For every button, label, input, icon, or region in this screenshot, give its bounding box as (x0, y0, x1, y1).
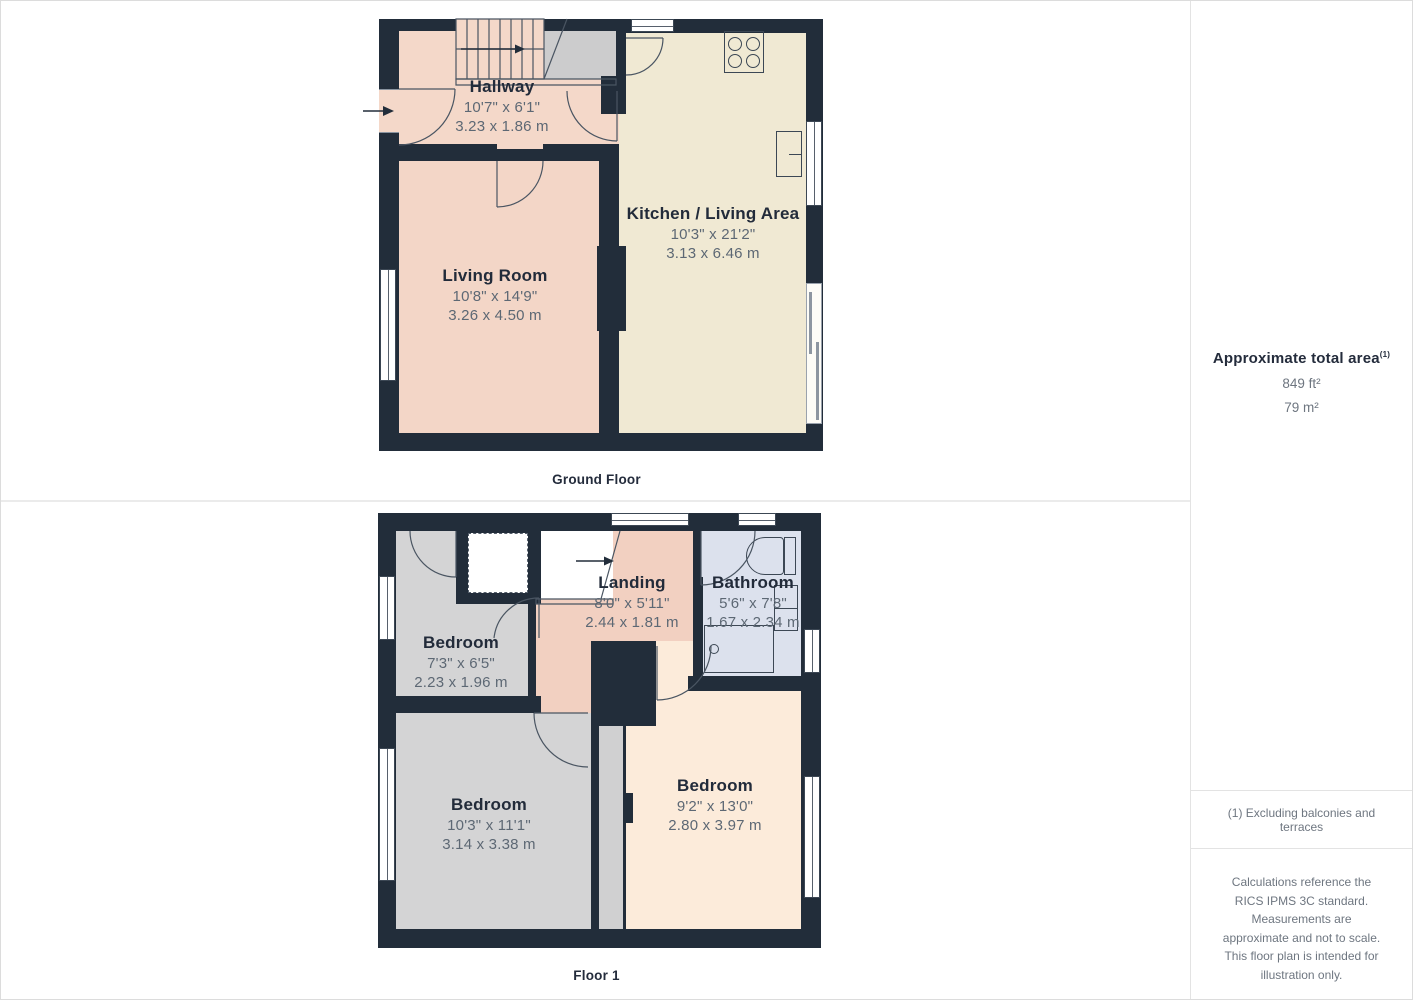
ground-floor-title: Ground Floor (1, 472, 1192, 487)
wall (688, 676, 821, 691)
living-room-window (380, 269, 396, 381)
bedroom-small-label: Bedroom 7'3" x 6'5" 2.23 x 1.96 m (414, 633, 508, 691)
room-dim-metric: 2.80 x 3.97 m (668, 817, 762, 834)
room-dim-imperial: 10'3" x 21'2" (627, 226, 800, 243)
room-dim-metric: 3.13 x 6.46 m (627, 245, 800, 262)
chimney-breast (597, 246, 626, 331)
room-dim-metric: 2.44 x 1.81 m (585, 614, 679, 631)
room-name: Living Room (442, 266, 547, 286)
total-area-ft: 849 ft² (1191, 376, 1412, 391)
ground-floor-plan: Hallway 10'7" x 6'1" 3.23 x 1.86 m Livin… (379, 19, 823, 451)
bathroom-window (804, 629, 820, 673)
area-sidebar: Approximate total area(1) 849 ft² 79 m² … (1190, 1, 1412, 1000)
corridor-strip (599, 726, 623, 929)
room-name: Bedroom (414, 633, 508, 653)
room-dim-imperial: 8'0" x 5'11" (585, 595, 679, 612)
room-name: Hallway (455, 77, 549, 97)
room-dim-metric: 3.23 x 1.86 m (455, 118, 549, 135)
room-name: Kitchen / Living Area (627, 204, 800, 224)
stair-upper-landing (544, 31, 616, 79)
toilet-tank-icon (784, 537, 796, 575)
shower-head-icon (709, 644, 719, 654)
floorplan-page: Hallway 10'7" x 6'1" 3.23 x 1.86 m Livin… (0, 0, 1413, 1000)
room-dim-metric: 3.14 x 3.38 m (442, 836, 536, 853)
center-wall-block (591, 641, 656, 726)
room-name: Bathroom (706, 573, 800, 593)
bedroom-small-window (379, 576, 395, 640)
room-dim-metric: 2.23 x 1.96 m (414, 674, 508, 691)
toilet-icon (746, 537, 784, 575)
floor1-plan: Landing 8'0" x 5'11" 2.44 x 1.81 m Bathr… (378, 513, 821, 948)
total-area-m: 79 m² (1191, 400, 1412, 415)
room-dim-imperial: 7'3" x 6'5" (414, 655, 508, 672)
room-dim-imperial: 5'6" x 7'8" (706, 595, 800, 612)
wall (693, 577, 703, 691)
closet-icon (468, 533, 528, 593)
floor1-panel: Landing 8'0" x 5'11" 2.44 x 1.81 m Bathr… (1, 502, 1192, 999)
room-dim-metric: 1.67 x 2.34 m (706, 614, 800, 631)
landing-label: Landing 8'0" x 5'11" 2.44 x 1.81 m (585, 573, 679, 631)
fridge-icon (776, 131, 802, 177)
stove-icon (724, 31, 764, 73)
bathroom-label: Bathroom 5'6" x 7'8" 1.67 x 2.34 m (706, 573, 800, 631)
footnote-section: (1) Excluding balconies and terraces (1191, 791, 1412, 849)
wall (379, 144, 497, 161)
bedroom-left-label: Bedroom 10'3" x 11'1" 3.14 x 3.38 m (442, 795, 536, 853)
total-area-footnote-marker: (1) (1380, 350, 1390, 359)
floorplan-main: Hallway 10'7" x 6'1" 3.23 x 1.86 m Livin… (1, 1, 1192, 1000)
total-area-section: Approximate total area(1) 849 ft² 79 m² (1191, 1, 1412, 791)
bedroom-left-window (379, 748, 395, 881)
total-area-title-text: Approximate total area (1213, 350, 1380, 367)
landing-top-window (611, 513, 689, 526)
kitchen-label: Kitchen / Living Area 10'3" x 21'2" 3.13… (627, 204, 800, 262)
wall (601, 76, 626, 114)
room-dim-imperial: 9'2" x 13'0" (668, 798, 762, 815)
room-dim-imperial: 10'8" x 14'9" (442, 288, 547, 305)
kitchen-top-window (631, 19, 674, 32)
wall-stub (623, 793, 633, 823)
room-dim-imperial: 10'3" x 11'1" (442, 817, 536, 834)
disclaimer-section: Calculations reference the RICS IPMS 3C … (1191, 849, 1412, 1000)
room-name: Bedroom (442, 795, 536, 815)
bathroom-top-window (738, 513, 776, 526)
floor1-title: Floor 1 (1, 968, 1192, 983)
hallway-label: Hallway 10'7" x 6'1" 3.23 x 1.86 m (455, 77, 549, 135)
entrance-opening (379, 89, 399, 133)
living-room-label: Living Room 10'8" x 14'9" 3.26 x 4.50 m (442, 266, 547, 324)
wall (378, 696, 541, 713)
bedroom-right-window (804, 776, 820, 898)
room-name: Bedroom (668, 776, 762, 796)
kitchen-window (806, 121, 822, 206)
footnote-text: (1) Excluding balconies and terraces (1205, 806, 1398, 834)
room-name: Landing (585, 573, 679, 593)
bedroom-right-label: Bedroom 9'2" x 13'0" 2.80 x 3.97 m (668, 776, 762, 834)
disclaimer-text: Calculations reference the RICS IPMS 3C … (1217, 873, 1386, 985)
patio-door (806, 283, 822, 424)
total-area-title: Approximate total area(1) (1191, 350, 1412, 367)
staircase-area (456, 19, 544, 79)
room-dim-metric: 3.26 x 4.50 m (442, 307, 547, 324)
room-dim-imperial: 10'7" x 6'1" (455, 99, 549, 116)
ground-floor-panel: Hallway 10'7" x 6'1" 3.23 x 1.86 m Livin… (1, 1, 1192, 502)
